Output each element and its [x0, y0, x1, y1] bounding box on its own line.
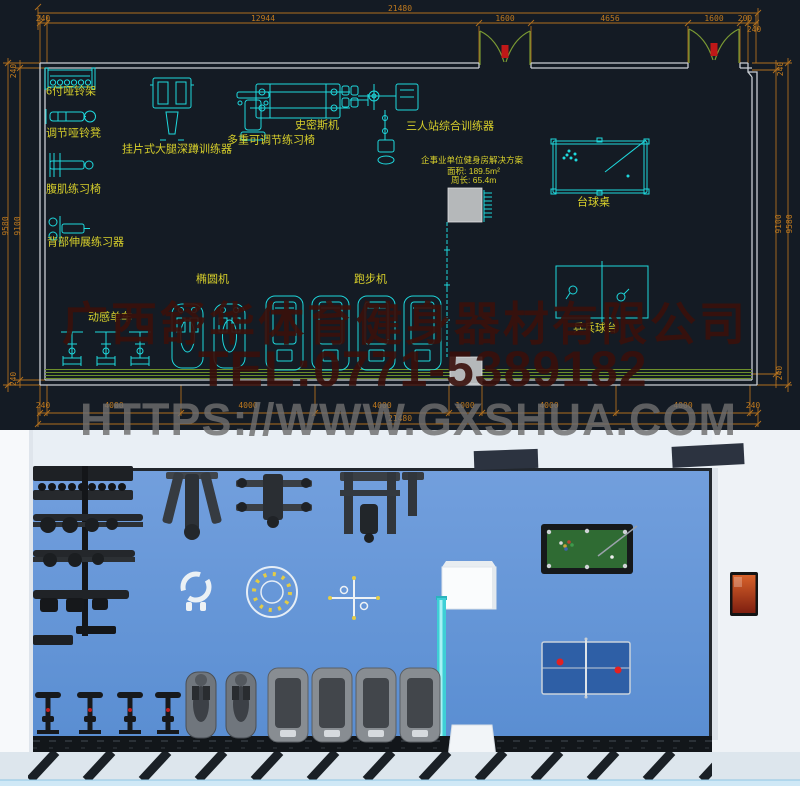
walkway: [0, 752, 800, 780]
door-mat-left: [474, 449, 539, 470]
dim-top-4656: 4656: [600, 15, 619, 23]
right-wall-shadow: [712, 468, 718, 740]
label-multi-bench: 多重可调节练习椅: [227, 136, 315, 147]
render-billiard-table: [541, 524, 637, 574]
label-spin-bike: 动感单车: [88, 313, 132, 324]
door-right-marker: [711, 43, 718, 56]
render-top-view: 广西舒华体育健身器材有限公司 TEL:0771-5389182 HTTPS://…: [0, 430, 800, 786]
label-treadmill: 跑步机: [354, 275, 387, 286]
smith-machine-glyph: [250, 84, 368, 118]
dim-top-12944: 12944: [251, 15, 275, 23]
ellipticals-glyph: [172, 304, 245, 368]
table-tennis-glyph: [556, 261, 648, 322]
dim-left-9100: 9100: [14, 216, 22, 235]
label-table-tennis: 乒乓球台: [573, 324, 617, 335]
dim-top-240: 240: [36, 15, 50, 23]
label-adjustable-bench: 调节哑铃凳: [46, 129, 101, 140]
label-ab-chair: 腹肌练习椅: [46, 185, 101, 196]
gym-design-screenshot: 21480 240 12944 1600 4656 1600 200 240 2…: [0, 0, 800, 786]
dim-left-9580: 9580: [2, 216, 10, 235]
label-squat-trainer: 挂片式大腿深蹲训练器: [122, 145, 232, 156]
dim-top-240r: 240: [747, 26, 761, 34]
left-wall-shade: [29, 430, 33, 776]
render-table-tennis: [542, 638, 630, 699]
dim-right-9580: 9580: [786, 214, 794, 233]
door-mat-right: [672, 443, 745, 468]
billiard-table-glyph: [551, 138, 649, 195]
dim-bot-4000d: 4000: [539, 402, 558, 410]
dim-right-240b: 240: [776, 366, 784, 380]
dim-bot-4000e: 4000: [673, 402, 692, 410]
tv-screen: [730, 572, 758, 616]
cad-floor-plan: 21480 240 12944 1600 4656 1600 200 240 2…: [0, 0, 800, 430]
spin-bikes-glyph: [61, 332, 151, 366]
label-elliptical: 椭圆机: [196, 275, 229, 286]
multi-bench-glyph: [237, 92, 269, 140]
ab-chair-glyph: [50, 153, 93, 177]
left-wall: [0, 430, 33, 776]
top-wall-edge: [33, 468, 712, 471]
dim-bot-240r: 240: [746, 402, 760, 410]
bottom-edge-strip: [0, 780, 800, 786]
equipment-glyphs: [45, 68, 649, 370]
column-top: [448, 188, 482, 222]
column-bottom: [450, 357, 482, 384]
render-column-cube: [442, 561, 496, 609]
adjustable-bench-glyph: [46, 109, 96, 124]
dim-top-200: 200: [738, 15, 752, 23]
plan-title: 企事业单位健身房解决方案: [421, 156, 523, 165]
dim-right-240t: 240: [777, 62, 785, 76]
squat-trainer-glyph: [150, 78, 194, 140]
dim-top-overall: 21480: [388, 5, 412, 13]
dim-left-240t: 240: [10, 64, 18, 78]
label-smith-machine: 史密斯机: [295, 121, 339, 132]
dim-bot-4000b: 4000: [238, 402, 257, 410]
walls: [40, 63, 757, 385]
label-dumbbell-rack: 6付哑铃架: [46, 87, 96, 98]
door-left-marker: [502, 45, 509, 58]
dim-top-1600b: 1600: [704, 15, 723, 23]
dim-bot-240l: 240: [36, 402, 50, 410]
label-three-station: 三人站综合训练器: [406, 122, 494, 133]
render-scene: [0, 430, 800, 786]
label-billiard-table: 台球桌: [577, 198, 610, 209]
bottom-wall-stripes: [45, 370, 752, 379]
dim-bot-4000a: 4000: [104, 402, 123, 410]
dim-bot-1000: 1000: [455, 402, 474, 410]
label-back-extension: 背部伸展练习器: [47, 238, 124, 249]
dim-bot-4000c: 4000: [372, 402, 391, 410]
right-wall-edge: [709, 468, 712, 740]
dim-left-240b: 240: [10, 372, 18, 386]
dim-right-9100: 9100: [775, 214, 783, 233]
dim-bot-overall: 21480: [388, 415, 412, 423]
plan-perimeter: 周长: 65.4m: [451, 176, 496, 185]
cad-linework: [0, 0, 800, 430]
dim-top-1600a: 1600: [495, 15, 514, 23]
treadmills-glyph: [266, 296, 441, 370]
